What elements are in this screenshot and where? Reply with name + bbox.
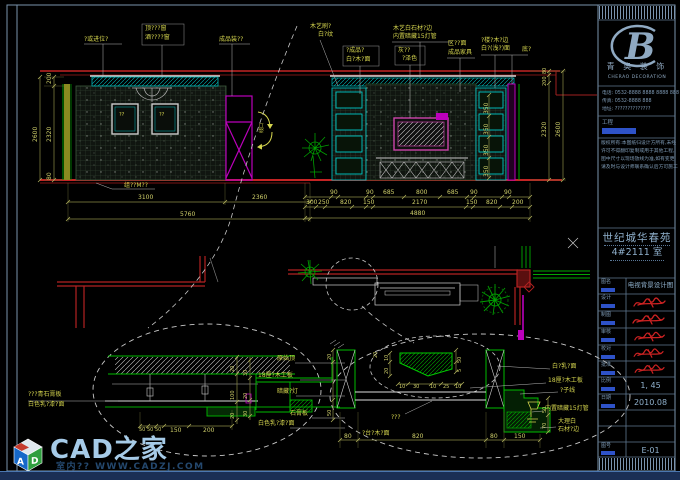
label-furniture: 成品家具 — [448, 50, 472, 57]
dim-seg: 90 — [330, 190, 338, 197]
dim-v: 100 — [231, 390, 237, 400]
plan-window-lines — [522, 246, 590, 278]
dim-seg: 820 — [340, 200, 351, 207]
dim-v: 20 — [231, 366, 237, 372]
plant-icon — [302, 133, 329, 178]
dim-v200: 200 — [543, 76, 549, 86]
dim-h: 10 — [455, 385, 461, 391]
row-value-sheetno: E-01 — [626, 446, 675, 455]
pilaster-strip — [508, 84, 515, 180]
label-gypsum: 石膏板 — [290, 411, 308, 418]
label-plywood: 18厘?木工板 — [548, 378, 583, 385]
row-label-check: 审核 — [601, 330, 611, 336]
cadzj-logo-text: CAD之家 — [50, 436, 168, 466]
dim-80: 80 — [490, 434, 498, 441]
label-area-face: 区??面 — [448, 41, 466, 48]
project-room: 4#2111 室 — [599, 248, 675, 259]
dim-150: 150 — [170, 428, 181, 435]
dim-v: 50 — [543, 407, 549, 413]
dim-2360: 2360 — [252, 195, 267, 202]
swing-mark: 线口 — [260, 123, 266, 133]
label-wood-face: 白?木?面 — [346, 57, 370, 64]
dim-seg: 685 — [447, 190, 458, 197]
dim-v80: 80 — [47, 172, 54, 180]
signature-stamps — [633, 298, 665, 373]
project-field-value-bar — [602, 128, 636, 134]
plant-icon — [480, 284, 510, 315]
label-base: 底? — [522, 47, 531, 54]
label-stone-edge: 石材?边 — [558, 427, 579, 434]
label-hidden-lamp: 内置暗藏15灯管 — [545, 406, 589, 413]
contact-line: 传真: 0532-8888 888 — [602, 99, 652, 105]
label-product: ?成品? — [346, 48, 364, 55]
dim-v: 30 — [244, 370, 250, 376]
label-white-paint: 白?乳?面 — [552, 364, 576, 371]
plant-icon — [298, 260, 322, 284]
dim-seg: 90 — [470, 190, 478, 197]
plan-walls — [57, 256, 534, 328]
section-posts — [330, 340, 504, 408]
dim-v: 20 — [328, 354, 334, 360]
underline — [604, 245, 670, 246]
label-grey: 灰?? — [398, 48, 410, 55]
notes-line: 图中尺寸以现场放线为准,如有变更 — [601, 157, 674, 163]
contact-line: 电话: 0532-8888 8888 8888 888 — [602, 91, 679, 97]
label-bar — [601, 371, 615, 375]
label-skirting: 组??M?? — [124, 183, 148, 190]
label-paint-left: 白色乳?漆?面 — [28, 402, 64, 409]
dim-80: 80 — [344, 434, 352, 441]
dim-seg: 90 — [366, 190, 374, 197]
dim-3100: 3100 — [138, 195, 153, 202]
titleblock-hatch-top — [599, 6, 675, 19]
dim-shelf: 350 — [484, 124, 491, 135]
label-hidden-lamp: 内置暗藏15灯管 — [393, 34, 437, 41]
label-finish-product: 成品装?? — [219, 37, 243, 44]
dim-v2600: 2600 — [33, 127, 40, 142]
dim-shelf: 350 — [484, 166, 491, 177]
label-wood-edge: ?楼?木?边 — [481, 38, 509, 45]
dim-seg: 820 — [486, 200, 497, 207]
left-elevation — [38, 24, 312, 222]
underline — [610, 260, 664, 261]
label-bar — [601, 404, 615, 408]
label-wood-white: 木艺刷? — [310, 24, 331, 31]
label-hidden-light: 暗藏?灯 — [277, 389, 298, 396]
callout-leader-curve — [362, 306, 414, 343]
bottom-bar — [0, 472, 680, 480]
detail-callout-circle — [326, 258, 378, 310]
row-value-scale: 1, 45 — [626, 381, 675, 390]
dim-shelf: 350 — [484, 145, 491, 156]
break-mark — [568, 238, 578, 248]
dim-shelf: 350 — [484, 103, 491, 114]
label-gypsum-left: ???青石膏板 — [28, 392, 62, 399]
plan-cabinet — [313, 278, 478, 305]
label-bar — [601, 387, 615, 391]
label-original-ceiling: 原始顶 — [277, 356, 295, 363]
dim-seg: 90 — [504, 190, 512, 197]
cube-letter-d: D — [31, 456, 38, 467]
molding-profile — [400, 353, 452, 376]
dim-seg: 685 — [383, 190, 394, 197]
dim-50: 50 — [139, 428, 145, 434]
label-bar — [601, 338, 615, 342]
dim-h: 30 — [413, 385, 419, 391]
contact-line: 地址: ?????????????? — [602, 107, 650, 113]
label-plywood: 18厘?木工板 — [258, 373, 293, 380]
row-label-approve: 批准 — [601, 363, 611, 369]
dim-seg: 250 — [318, 200, 329, 207]
dim-h: 10 — [430, 385, 436, 391]
row-label-draft: 制图 — [601, 313, 611, 319]
dim-v80: 80 — [543, 68, 549, 74]
dim-5760: 5760 — [180, 212, 195, 219]
dim-v: 20 — [231, 413, 237, 419]
titleblock-hatch-bottom — [599, 458, 675, 470]
dim-v: 10 — [385, 355, 391, 361]
dim-v2320: 2320 — [542, 122, 549, 137]
label-trim-line: ?子线 — [560, 388, 575, 395]
row-label-proof: 校对 — [601, 347, 611, 353]
dim-h: 25 — [443, 385, 449, 391]
dim-50: 50 — [147, 428, 153, 434]
dim-50: 50 — [155, 428, 161, 434]
label-query: ??? — [391, 415, 401, 422]
cad-drawing-sheet: B — [0, 0, 680, 480]
label-bar — [601, 304, 615, 308]
label-ceiling-window: 顶???窗 — [145, 26, 167, 33]
curtain-strip — [64, 84, 70, 180]
label-wall-finish: ?或进位? — [84, 37, 108, 44]
label-stone-edge: 木艺白石材?边 — [393, 26, 432, 33]
right-elevation — [258, 40, 566, 222]
crown-molding — [92, 77, 218, 86]
dim-seg: 300 — [306, 200, 317, 207]
dim-total: 4880 — [410, 211, 425, 218]
frame-mark: ?? — [119, 113, 124, 119]
dim-v: 5 — [458, 369, 464, 372]
dim-v: 20 — [385, 368, 391, 374]
dim-seg: 800 — [416, 190, 427, 197]
row-value-drawing-name: 电视背景设计图 — [626, 282, 675, 289]
label-bar — [601, 321, 615, 325]
side-cabinet — [226, 96, 252, 180]
dim-200: 200 — [203, 428, 214, 435]
shelf-column-right — [476, 88, 506, 180]
dim-v: 20 — [244, 393, 250, 399]
cadzj-cube-icon: A D — [14, 439, 42, 471]
detail-cabinet-section — [330, 330, 630, 458]
row-label-drawing-name: 图名 — [601, 280, 611, 286]
dim-v: 20 — [374, 352, 380, 358]
row-label-design: 设计 — [601, 296, 611, 302]
dim-h: 10 — [399, 385, 405, 391]
dim-seg: 2170 — [412, 200, 427, 207]
tv-screen — [394, 113, 448, 150]
brand-cn: 青 奥 装 饰 — [600, 62, 674, 71]
notes-line: 版权所有:本图纸归设计方所有,未经 — [601, 141, 676, 147]
row-label-sheetno: 图号 — [601, 444, 611, 450]
project-field-label: 工程 — [602, 120, 613, 126]
cube-letter-a: A — [17, 457, 24, 467]
label-white-light: 白?(浅?)面 — [481, 46, 510, 53]
row-label-scale: 比例 — [601, 379, 611, 385]
row-label-date: 日期 — [601, 396, 611, 402]
dim-v: 70 — [543, 423, 549, 429]
dim-820: 820 — [412, 434, 423, 441]
dim-seg: 150 — [363, 200, 374, 207]
label-bar — [601, 355, 615, 359]
notes-line: 请及时与设计师联系确认后方可施工 — [601, 165, 678, 171]
dim-v2600: 2600 — [556, 122, 563, 137]
dim-v200: 200 — [47, 73, 54, 84]
frame-mark: ?? — [159, 113, 164, 119]
dim-v: 50 — [458, 357, 464, 363]
dim-v: 50 — [328, 410, 334, 416]
dim-150: 150 — [514, 434, 525, 441]
brand-en: CHERAO DECORATION — [600, 75, 674, 80]
project-name: 世纪城华春苑 — [599, 232, 675, 244]
label-wood-white2: 白?纹 — [318, 32, 333, 39]
label-bar — [601, 451, 615, 455]
label-bar — [601, 288, 615, 292]
dim-v2320: 2320 — [47, 127, 54, 142]
notes-line: 许可不得翻印复制或用于其他工程, — [601, 149, 674, 155]
label-white-paint: 白色乳?漆?面 — [258, 421, 294, 428]
row-value-date: 2010.08 — [626, 398, 675, 407]
dim-v: 30 — [244, 411, 250, 417]
dim-seg: 150 — [466, 200, 477, 207]
dim-seg: 200 — [512, 200, 523, 207]
label-wine-cabinet: 酒????窗 — [145, 35, 170, 42]
plan-door-end — [518, 330, 524, 340]
label-grey2: ?泽色 — [402, 56, 417, 63]
label-wood-base: ?台?木?面 — [362, 431, 390, 438]
shelf-column-left — [332, 88, 366, 180]
label-marble: 大理白 — [558, 419, 576, 426]
